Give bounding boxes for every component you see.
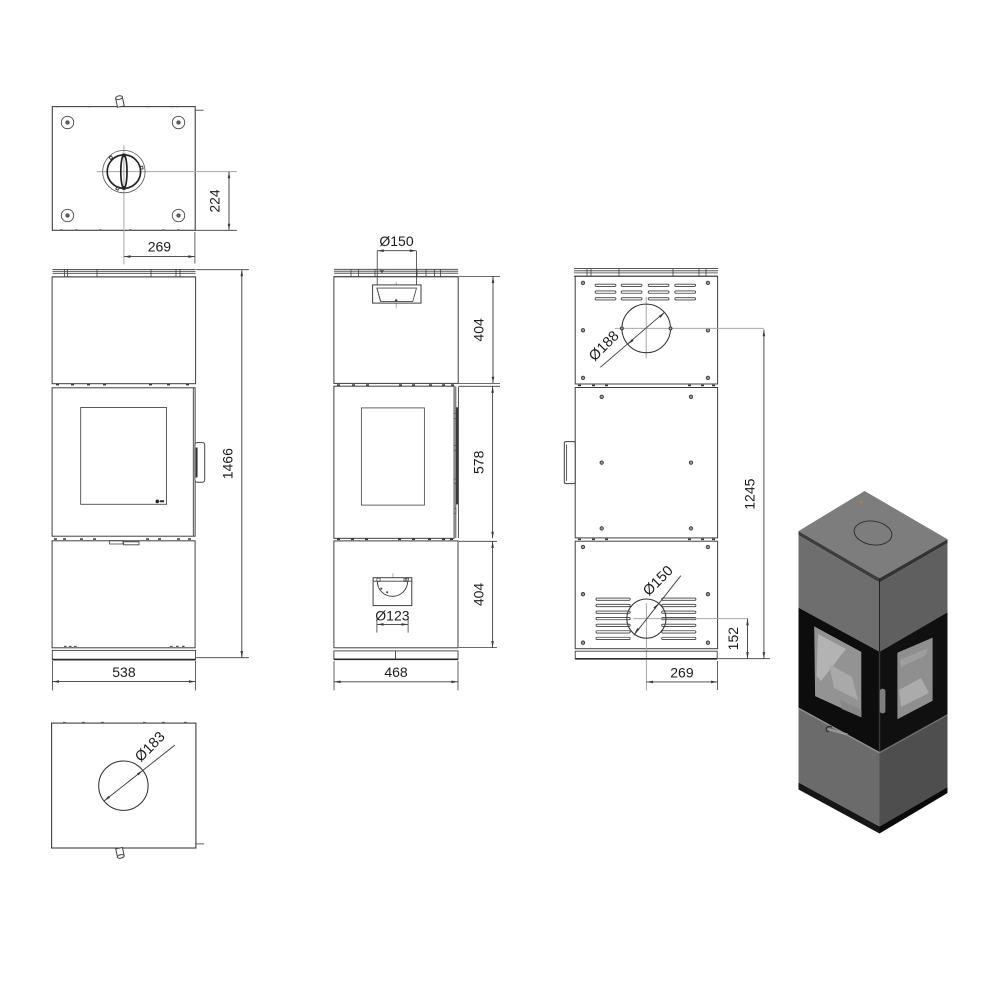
svg-text:Ø150: Ø150	[640, 563, 676, 599]
svg-text:578: 578	[471, 450, 487, 474]
svg-text:Ø188: Ø188	[586, 328, 622, 364]
svg-text:1466: 1466	[219, 448, 235, 479]
svg-text:269: 269	[148, 238, 172, 254]
svg-text:538: 538	[112, 664, 136, 680]
svg-text:Ø183: Ø183	[132, 729, 168, 765]
svg-text:1245: 1245	[742, 478, 758, 509]
svg-text:Ø123: Ø123	[375, 607, 409, 623]
svg-text:152: 152	[725, 627, 741, 651]
svg-text:404: 404	[471, 583, 487, 607]
svg-text:224: 224	[207, 189, 223, 213]
svg-text:Ø150: Ø150	[379, 233, 413, 249]
svg-text:404: 404	[471, 318, 487, 342]
svg-text:468: 468	[384, 664, 408, 680]
svg-text:269: 269	[670, 664, 694, 680]
